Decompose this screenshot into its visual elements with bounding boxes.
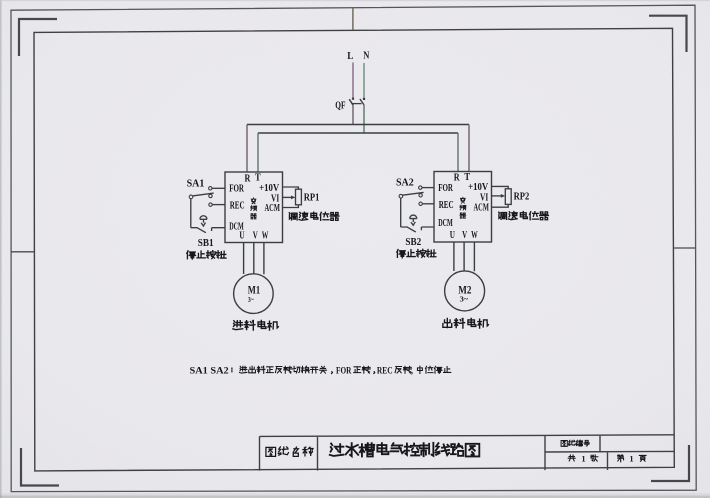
svg-text:REC: REC [230,201,245,212]
svg-text:+10V: +10V [259,183,279,194]
svg-text:R: R [454,173,460,184]
svg-text:W: W [262,230,269,241]
svg-text:SA1 SA2: SA1 SA2 [190,366,229,376]
svg-text:U: U [239,230,244,241]
svg-text:+10V: +10V [468,182,488,193]
svg-text:L: L [347,50,353,62]
svg-text:ACM: ACM [265,203,280,214]
svg-text:SA2: SA2 [396,178,414,189]
svg-text:REC: REC [439,200,454,211]
svg-text:W: W [471,230,478,241]
svg-text:R: R [244,173,250,184]
svg-text:REC: REC [377,366,393,376]
svg-text:FOR: FOR [438,183,453,194]
svg-text:DCM: DCM [438,218,453,229]
svg-text:FOR: FOR [336,366,351,376]
svg-text:SB1: SB1 [198,238,214,249]
svg-text:M1: M1 [248,282,260,296]
svg-text:RP2: RP2 [514,191,530,202]
svg-text:V: V [253,230,258,241]
svg-text:QF: QF [335,101,345,112]
svg-text:N: N [363,50,369,62]
svg-text:,: , [411,366,413,376]
svg-text:3~: 3~ [460,295,469,303]
svg-text:V: V [462,230,467,241]
svg-text:SA1: SA1 [187,178,205,189]
svg-text:RP1: RP1 [304,192,320,203]
svg-text:SB2: SB2 [405,237,421,248]
svg-text:1: 1 [629,454,633,464]
svg-text:ACM: ACM [474,202,489,213]
svg-text:3~: 3~ [248,296,254,304]
svg-text:1: 1 [581,454,585,464]
svg-text:U: U [450,230,455,241]
svg-text:FOR: FOR [229,184,244,195]
